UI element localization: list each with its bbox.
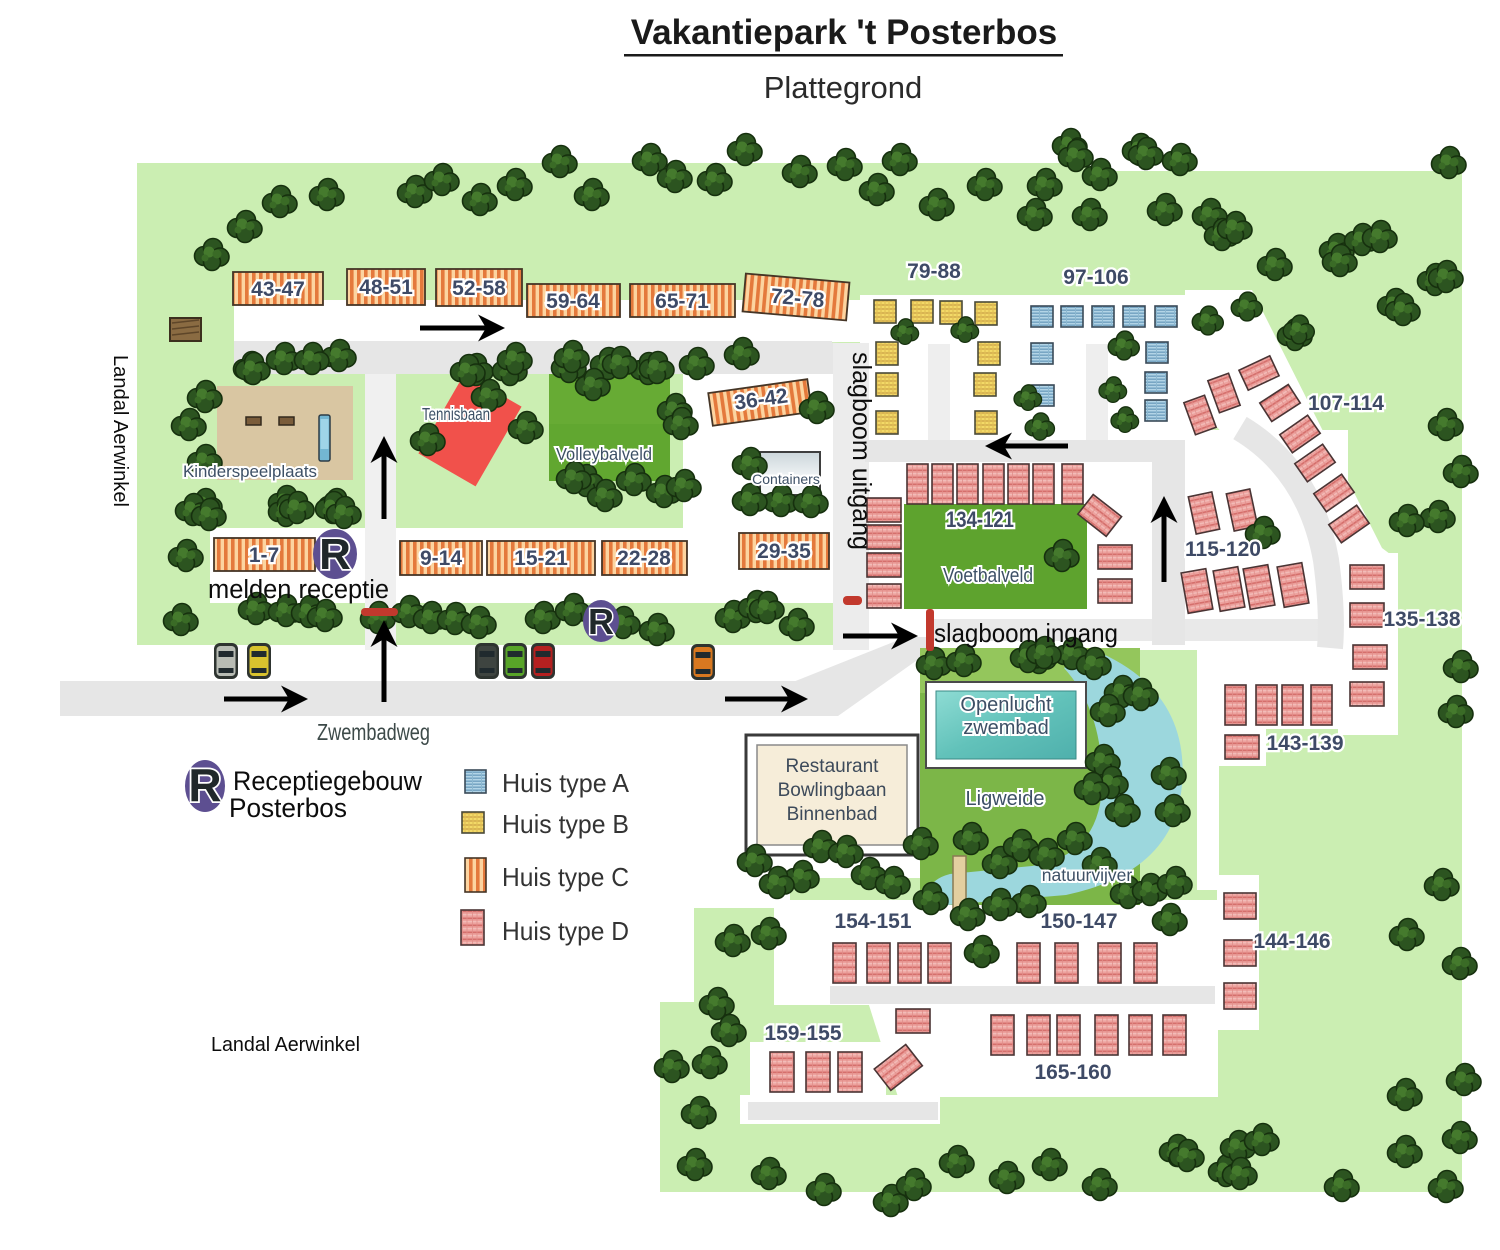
svg-text:Plattegrond: Plattegrond bbox=[764, 70, 923, 105]
svg-text:R: R bbox=[188, 759, 221, 811]
svg-text:Ligweide: Ligweide bbox=[966, 788, 1045, 810]
svg-text:Containers: Containers bbox=[752, 471, 820, 487]
svg-text:Voetbalveld: Voetbalveld bbox=[943, 565, 1033, 587]
svg-text:Kinderspeelplaats: Kinderspeelplaats bbox=[183, 462, 317, 481]
svg-text:150-147: 150-147 bbox=[1040, 910, 1117, 933]
svg-text:135-138: 135-138 bbox=[1383, 608, 1460, 631]
svg-text:Zwembadweg: Zwembadweg bbox=[317, 719, 430, 745]
svg-text:R: R bbox=[319, 530, 351, 579]
svg-text:22-28: 22-28 bbox=[617, 547, 671, 570]
svg-text:15-21: 15-21 bbox=[514, 547, 568, 570]
svg-text:Huis type B: Huis type B bbox=[502, 809, 629, 839]
svg-text:Bowlingbaan: Bowlingbaan bbox=[778, 780, 887, 801]
svg-text:65-71: 65-71 bbox=[655, 290, 709, 313]
svg-text:143-139: 143-139 bbox=[1266, 732, 1343, 755]
svg-text:107-114: 107-114 bbox=[1308, 392, 1384, 415]
svg-text:melden receptie: melden receptie bbox=[208, 576, 389, 604]
svg-text:Huis type C: Huis type C bbox=[502, 862, 629, 892]
svg-text:Volleybalveld: Volleybalveld bbox=[556, 444, 652, 464]
svg-text:Huis type A: Huis type A bbox=[502, 768, 630, 798]
svg-text:Openlucht: Openlucht bbox=[960, 694, 1052, 716]
svg-text:43-47: 43-47 bbox=[251, 278, 305, 301]
svg-text:29-35: 29-35 bbox=[757, 540, 811, 563]
svg-text:115-120: 115-120 bbox=[1185, 538, 1261, 561]
svg-text:165-160: 165-160 bbox=[1034, 1061, 1111, 1084]
svg-text:72-78: 72-78 bbox=[770, 285, 826, 313]
svg-text:Huis type D: Huis type D bbox=[502, 916, 629, 946]
svg-text:Landal Aerwinkel: Landal Aerwinkel bbox=[109, 355, 132, 507]
svg-text:154-151: 154-151 bbox=[834, 910, 911, 933]
svg-text:134-121: 134-121 bbox=[946, 507, 1014, 532]
svg-text:natuurvijver: natuurvijver bbox=[1042, 865, 1133, 885]
svg-text:144-146: 144-146 bbox=[1253, 930, 1330, 953]
svg-text:48-51: 48-51 bbox=[359, 276, 413, 299]
svg-text:159-155: 159-155 bbox=[764, 1022, 841, 1045]
svg-text:Posterbos: Posterbos bbox=[229, 793, 347, 823]
svg-text:Vakantiepark 't Posterbos: Vakantiepark 't Posterbos bbox=[631, 13, 1058, 52]
svg-text:zwembad: zwembad bbox=[963, 717, 1049, 739]
svg-text:Receptiegebouw: Receptiegebouw bbox=[233, 766, 422, 796]
svg-text:9-14: 9-14 bbox=[420, 547, 462, 570]
svg-text:1-7: 1-7 bbox=[249, 544, 279, 567]
svg-text:Restaurant: Restaurant bbox=[786, 756, 880, 777]
svg-text:79-88: 79-88 bbox=[907, 260, 961, 283]
svg-text:slagboom ingang: slagboom ingang bbox=[934, 618, 1118, 648]
svg-text:Binnenbad: Binnenbad bbox=[787, 804, 878, 825]
svg-text:52-58: 52-58 bbox=[452, 277, 506, 300]
svg-text:97-106: 97-106 bbox=[1063, 266, 1128, 289]
svg-text:59-64: 59-64 bbox=[546, 290, 600, 313]
svg-text:Tennisbaan: Tennisbaan bbox=[422, 404, 490, 424]
svg-text:slagboom uitgang: slagboom uitgang bbox=[847, 352, 877, 550]
svg-text:R: R bbox=[588, 601, 614, 642]
svg-text:Landal Aerwinkel: Landal Aerwinkel bbox=[211, 1034, 360, 1056]
